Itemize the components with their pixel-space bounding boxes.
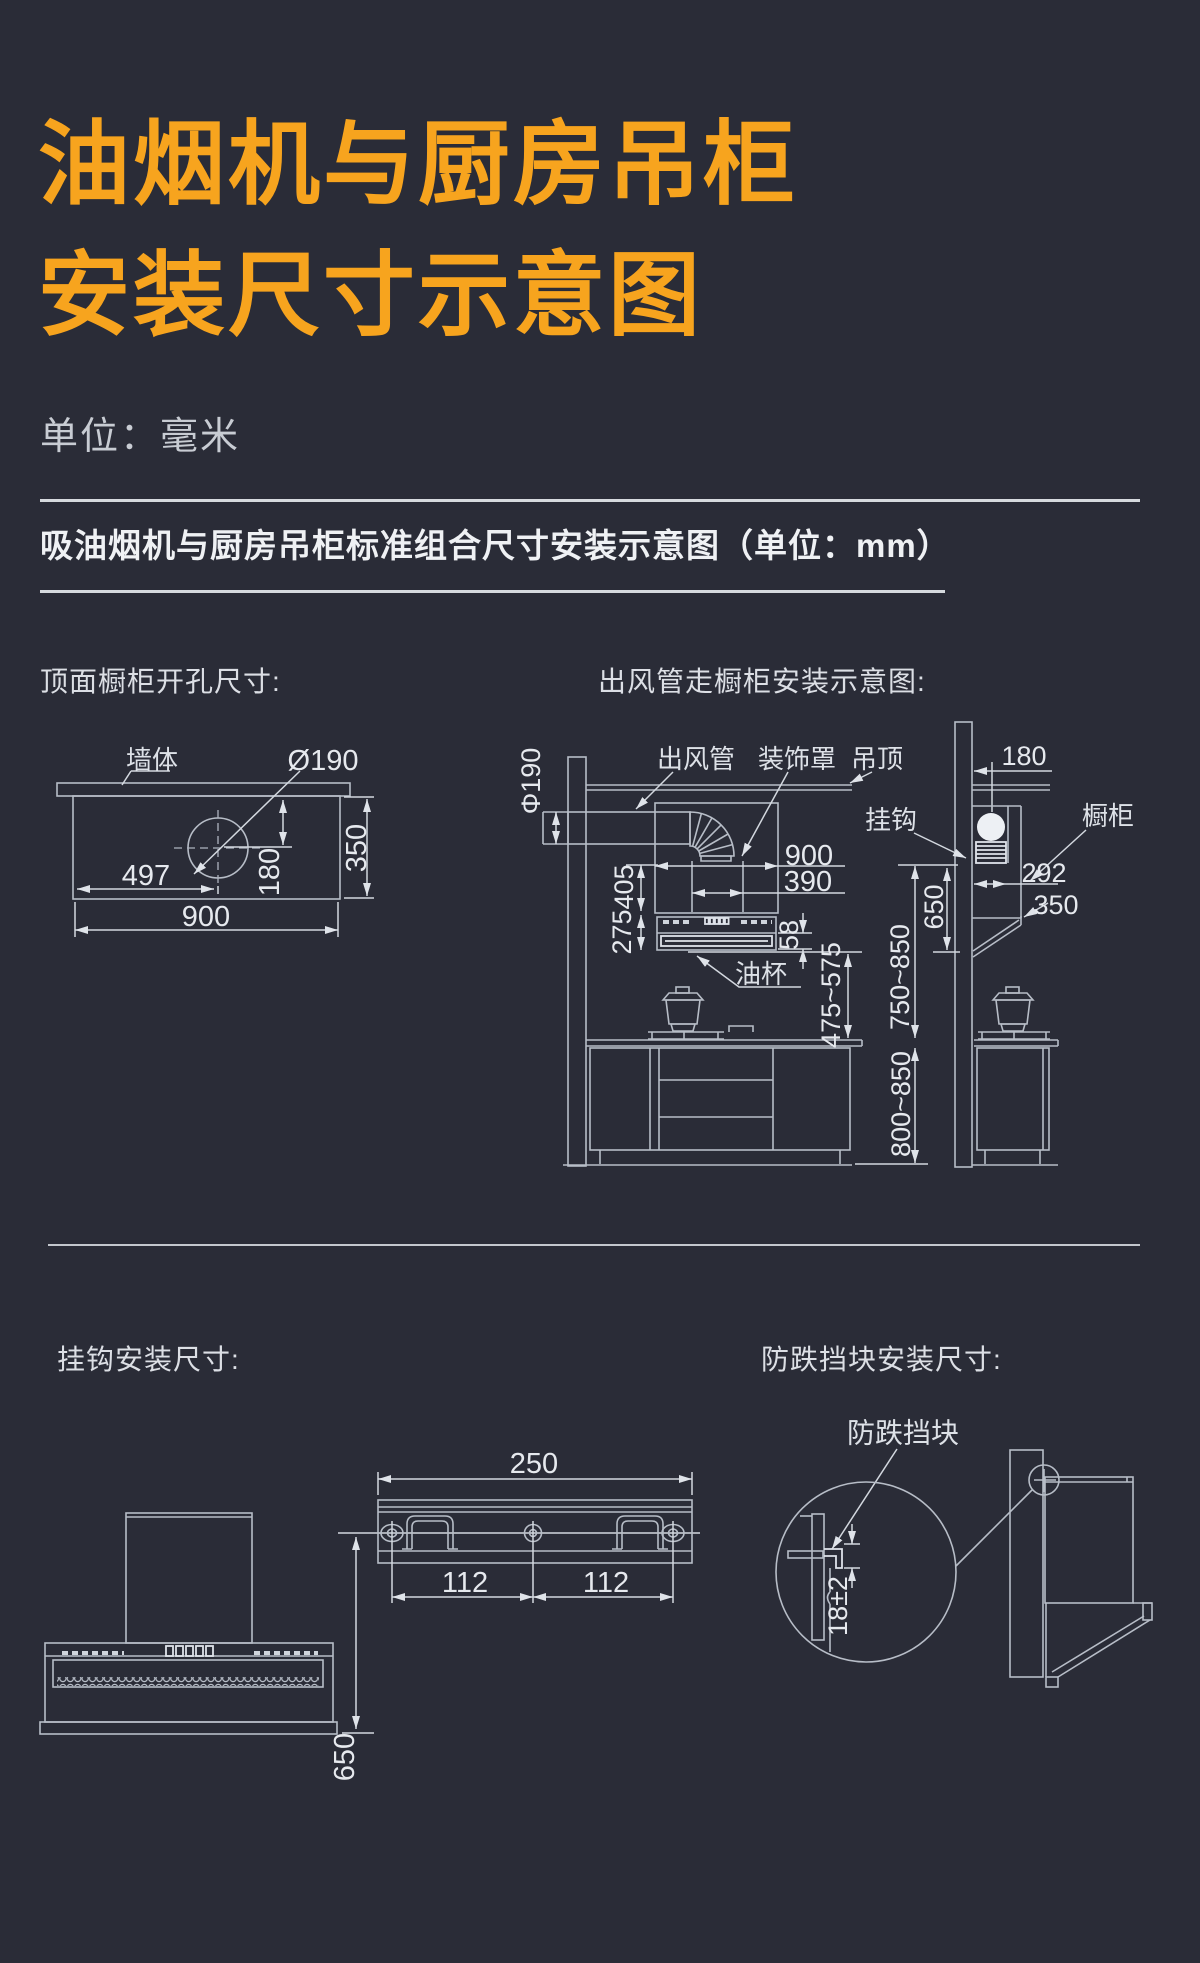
technical-drawing-canvas: 墙体 Ø190 497 900 350 180 (0, 0, 1200, 1963)
dim-span-right: 112 (583, 1567, 629, 1599)
ceiling-label: 吊顶 (851, 744, 903, 774)
dim-292: 292 (1021, 858, 1066, 888)
dim-cover-width: 390 (784, 866, 832, 898)
dim-650-drop: 650 (919, 884, 949, 929)
dim-wall-offset: 180 (1001, 741, 1046, 771)
hood-front-view (40, 1513, 337, 1734)
dim-497: 497 (122, 860, 170, 892)
dim-650-height: 650 (329, 1733, 361, 1781)
dim-duct-diameter: Φ190 (516, 748, 546, 815)
dim-counter-height: 800~850 (886, 1051, 916, 1157)
wall-label: 墙体 (126, 745, 178, 775)
diagram-anti-tip-block: 防跌挡块 18±2 (776, 1418, 1152, 1688)
diagram-hanger-bar: 250 112 112 650 (40, 1448, 700, 1781)
hole-diameter-label: Ø190 (288, 745, 359, 777)
oil-cup-label: 油杯 (735, 959, 787, 989)
dim-405: 405 (609, 864, 639, 909)
poster-page: 油烟机与厨房吊柜 安装尺寸示意图 单位：毫米 吸油烟机与厨房吊柜标准组合尺寸安装… (0, 0, 1200, 1963)
dim-900-width: 900 (182, 901, 230, 933)
duct-label: 出风管 (657, 744, 735, 774)
dim-hook-height: 750~850 (885, 924, 915, 1030)
dim-span-left: 112 (442, 1567, 488, 1599)
diagram-cabinet-cutout: 墙体 Ø190 497 900 350 180 (57, 745, 374, 937)
cabinet-label: 橱柜 (1082, 801, 1134, 831)
dim-58: 58 (774, 920, 804, 950)
dim-clearance: 18±2 (823, 1576, 853, 1636)
dim-275: 275 (607, 909, 637, 954)
hook-label: 挂钩 (865, 805, 917, 835)
diagram-duct-installation: Φ190 出风管 装饰罩 吊顶 900 390 (516, 722, 1134, 1167)
dim-350: 350 (1033, 890, 1078, 920)
cover-label: 装饰罩 (758, 744, 836, 774)
dim-bar-width: 250 (510, 1448, 558, 1480)
cabinet-side-assembly (956, 1450, 1152, 1687)
hood-buttons (705, 918, 729, 924)
dim-350-depth: 350 (341, 824, 373, 872)
dim-hood-clearance: 475~575 (816, 942, 846, 1048)
anti-tip-block-label: 防跌挡块 (847, 1418, 959, 1449)
dim-180-offset: 180 (254, 848, 286, 896)
